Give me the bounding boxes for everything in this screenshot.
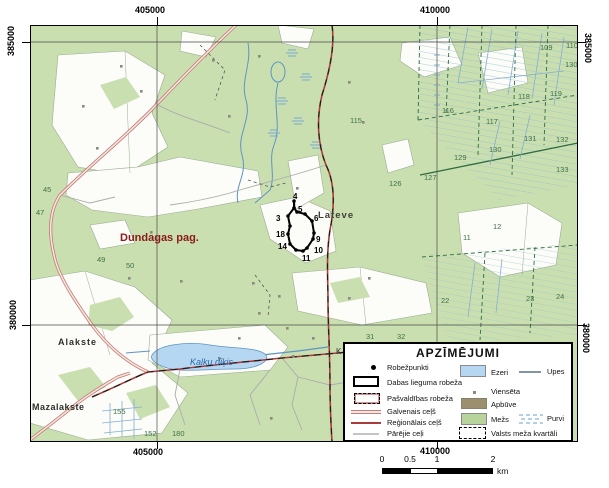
scale-tick-label: 0	[380, 454, 385, 464]
legend-symbol-boundary-point	[371, 365, 376, 370]
quarter-number: 115	[350, 116, 362, 125]
boundary-point-label: 10	[314, 246, 323, 255]
quarter-number: 116	[442, 106, 454, 115]
boundary-point-label: 4	[293, 192, 298, 201]
grid-label-right-380000: 380000	[581, 323, 591, 353]
grid-tick	[22, 42, 30, 43]
lake-label: Kalku dīķis	[190, 357, 234, 367]
scale-bar: 0 0.5 1 2 km	[370, 450, 530, 482]
quarter-number: 131	[524, 134, 537, 143]
legend-label: Robežpunkti	[387, 363, 429, 372]
grid-label-top-405000: 405000	[135, 5, 165, 15]
legend-symbol-reserve-boundary	[353, 376, 379, 387]
legend-symbol-state-forest-quarters	[459, 427, 486, 439]
quarter-number: 119	[550, 89, 562, 98]
boundary-point-label: 5	[298, 205, 303, 214]
legend-symbol-main-road	[351, 410, 381, 414]
legend-symbol-rivers	[519, 371, 541, 373]
scale-tick-label: 1	[435, 454, 440, 464]
legend-label: Apbūve	[491, 400, 516, 409]
legend-label: Reģionālais ceļš	[387, 418, 442, 427]
boundary-point-label: 18	[276, 230, 285, 239]
legend-label: Galvenais ceļš	[387, 407, 436, 416]
scale-segment-black	[437, 469, 492, 473]
quarter-number: 130	[565, 60, 578, 69]
quarter-number: 117	[486, 117, 498, 126]
grid-tick	[22, 325, 30, 326]
scale-tick-label: 2	[491, 454, 496, 464]
legend-label: Pārējie ceļi	[387, 429, 424, 438]
quarter-number: 155	[113, 407, 126, 416]
legend-label: Dabas lieguma robeža	[387, 378, 462, 387]
quarter-number: 133	[556, 165, 569, 174]
grid-tick	[578, 325, 586, 326]
settlement-label-lateve: Lateve	[318, 210, 354, 221]
legend-title: APZĪMĒJUMI	[345, 346, 571, 360]
quarter-number: 110	[566, 41, 578, 50]
quarter-number: 32	[397, 332, 405, 341]
legend-label: Purvi	[547, 414, 564, 423]
legend-symbol-farmstead	[473, 391, 476, 394]
grid-label-left-380000: 380000	[8, 300, 18, 330]
quarter-number: 22	[441, 296, 449, 305]
quarter-number: 11	[463, 233, 471, 242]
legend-symbol-swamp	[519, 412, 543, 425]
quarter-number: 50	[126, 261, 134, 270]
grid-label-left-385000: 385000	[6, 26, 16, 56]
legend-label: Valsts meža kvartāli	[491, 429, 557, 438]
legend-label: Ezeri	[491, 368, 508, 377]
boundary-point-label: 11	[302, 254, 311, 263]
scale-unit-label: km	[497, 466, 508, 476]
quarter-number: 45	[43, 185, 51, 194]
quarter-number: 12	[493, 222, 501, 231]
grid-label-bottom-405000: 405000	[133, 447, 163, 457]
quarter-number: 130	[489, 145, 502, 154]
legend-symbol-regional-road	[351, 422, 381, 424]
quarter-number: 132	[556, 135, 569, 144]
grid-tick	[437, 17, 438, 25]
scale-segment-white	[411, 469, 438, 473]
legend-label: Viensēta	[491, 387, 520, 396]
legend-symbol-built-up	[461, 398, 487, 409]
legend-label: Pašvaldības robeža	[387, 394, 453, 403]
quarter-number: 127	[424, 173, 437, 182]
scale-tick-label: 0.5	[404, 454, 416, 464]
quarter-number: 118	[518, 92, 530, 101]
partial-label-k: K	[336, 347, 342, 356]
boundary-point-label: 14	[278, 242, 287, 251]
map-page: 3 4 5 6 9 10 11 14 18 45 47 49 50 109 11…	[0, 0, 609, 488]
legend-box: APZĪMĒJUMI Robežpunkti Dabas lieguma rob…	[343, 342, 573, 442]
grid-tick	[437, 442, 438, 449]
boundary-point-label: 3	[276, 214, 281, 223]
quarter-number: 24	[556, 292, 564, 301]
quarter-number: 109	[540, 43, 553, 52]
municipality-label: Dundagas pag.	[120, 232, 199, 244]
grid-tick	[157, 442, 158, 449]
grid-tick	[157, 17, 158, 25]
scale-segment-black	[383, 469, 411, 473]
grid-label-right-385000: 385000	[583, 33, 593, 63]
legend-label: Mežs	[491, 415, 509, 424]
boundary-point-label: 9	[316, 235, 321, 244]
quarter-number: 129	[454, 153, 467, 162]
legend-symbol-other-roads	[353, 433, 379, 435]
legend-label: Upes	[547, 367, 565, 376]
quarter-number: 49	[97, 255, 105, 264]
grid-label-top-410000: 410000	[420, 5, 450, 15]
legend-symbol-forest	[461, 413, 487, 425]
settlement-label-mazalakste: Mazalakste	[32, 402, 85, 412]
grid-tick	[578, 42, 586, 43]
legend-symbol-lakes	[460, 365, 486, 377]
quarter-number: 23	[526, 294, 534, 303]
legend-symbol-municipal-boundary	[354, 393, 380, 404]
settlement-label-alakste: Alakste	[58, 337, 97, 347]
quarter-number: 31	[366, 332, 374, 341]
scale-bar-segments	[382, 468, 493, 474]
quarter-number: 47	[36, 208, 44, 217]
quarter-number: 152	[144, 429, 157, 438]
quarter-number: 126	[389, 179, 402, 188]
quarter-number: 180	[172, 429, 185, 438]
